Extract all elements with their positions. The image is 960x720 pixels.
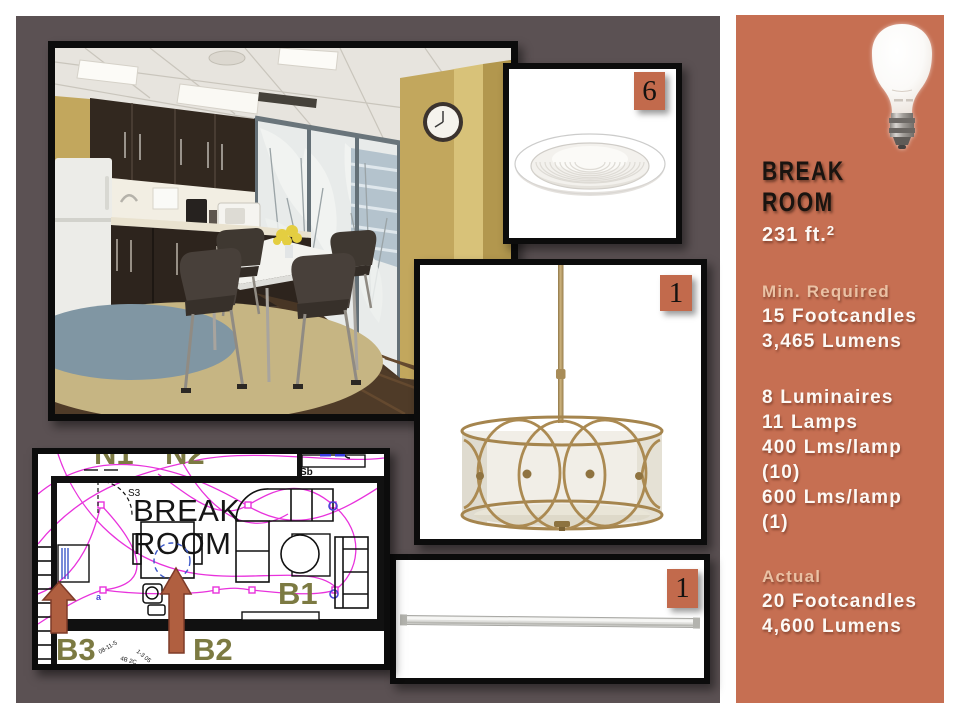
svg-text:N2: N2 — [165, 454, 205, 471]
svg-text:ROOM: ROOM — [133, 526, 231, 561]
svg-text:B2: B2 — [193, 632, 233, 664]
svg-text:B3: B3 — [56, 632, 96, 664]
svg-text:Sb: Sb — [300, 467, 313, 478]
svg-text:N1: N1 — [94, 454, 134, 471]
svg-text:B1: B1 — [278, 576, 318, 611]
